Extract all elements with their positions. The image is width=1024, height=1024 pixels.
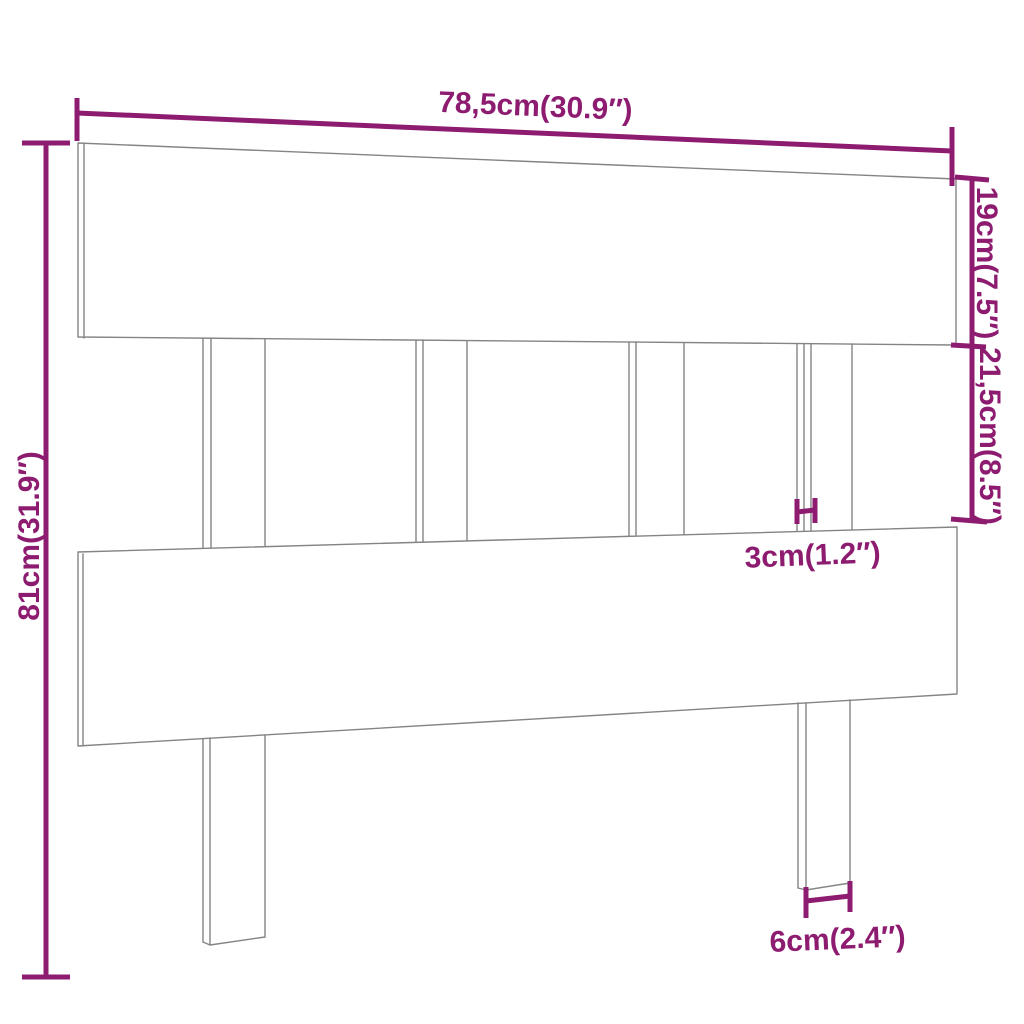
- leg-bottom-edge: [203, 937, 265, 945]
- slat-dim-bar: [797, 510, 815, 512]
- headboard-dimension-diagram: 78,5cm(30.9″) 19cm(7.5″) 21,5cm(8.5″) 81…: [0, 0, 1024, 1024]
- diagram-canvas: 78,5cm(30.9″) 19cm(7.5″) 21,5cm(8.5″) 81…: [0, 0, 1024, 1024]
- slat-3: [629, 342, 684, 536]
- total-height-label: 81cm(31.9″): [13, 451, 46, 620]
- slat-left-stile: [203, 338, 265, 548]
- right-side-dimensions: 19cm(7.5″) 21,5cm(8.5″): [951, 177, 1006, 525]
- leg-width-label: 6cm(2.4″): [769, 920, 906, 959]
- leg-width-dimension: 6cm(2.4″): [769, 881, 906, 959]
- top-board-height-label: 19cm(7.5″): [970, 187, 1003, 340]
- right-dim-tick-top: [955, 177, 989, 180]
- total-height-dimension: 81cm(31.9″): [13, 143, 70, 977]
- slat-2: [416, 340, 467, 542]
- left-leg: [203, 735, 265, 945]
- total-width-label: 78,5cm(30.9″): [438, 86, 634, 127]
- slat-thickness-label: 3cm(1.2″): [744, 536, 881, 574]
- gap-height-label: 21,5cm(8.5″): [973, 347, 1006, 525]
- right-leg: [798, 700, 850, 890]
- leg-dim-bar: [806, 896, 850, 901]
- top-board-face: [78, 143, 956, 345]
- slat-right-stile: [797, 344, 852, 532]
